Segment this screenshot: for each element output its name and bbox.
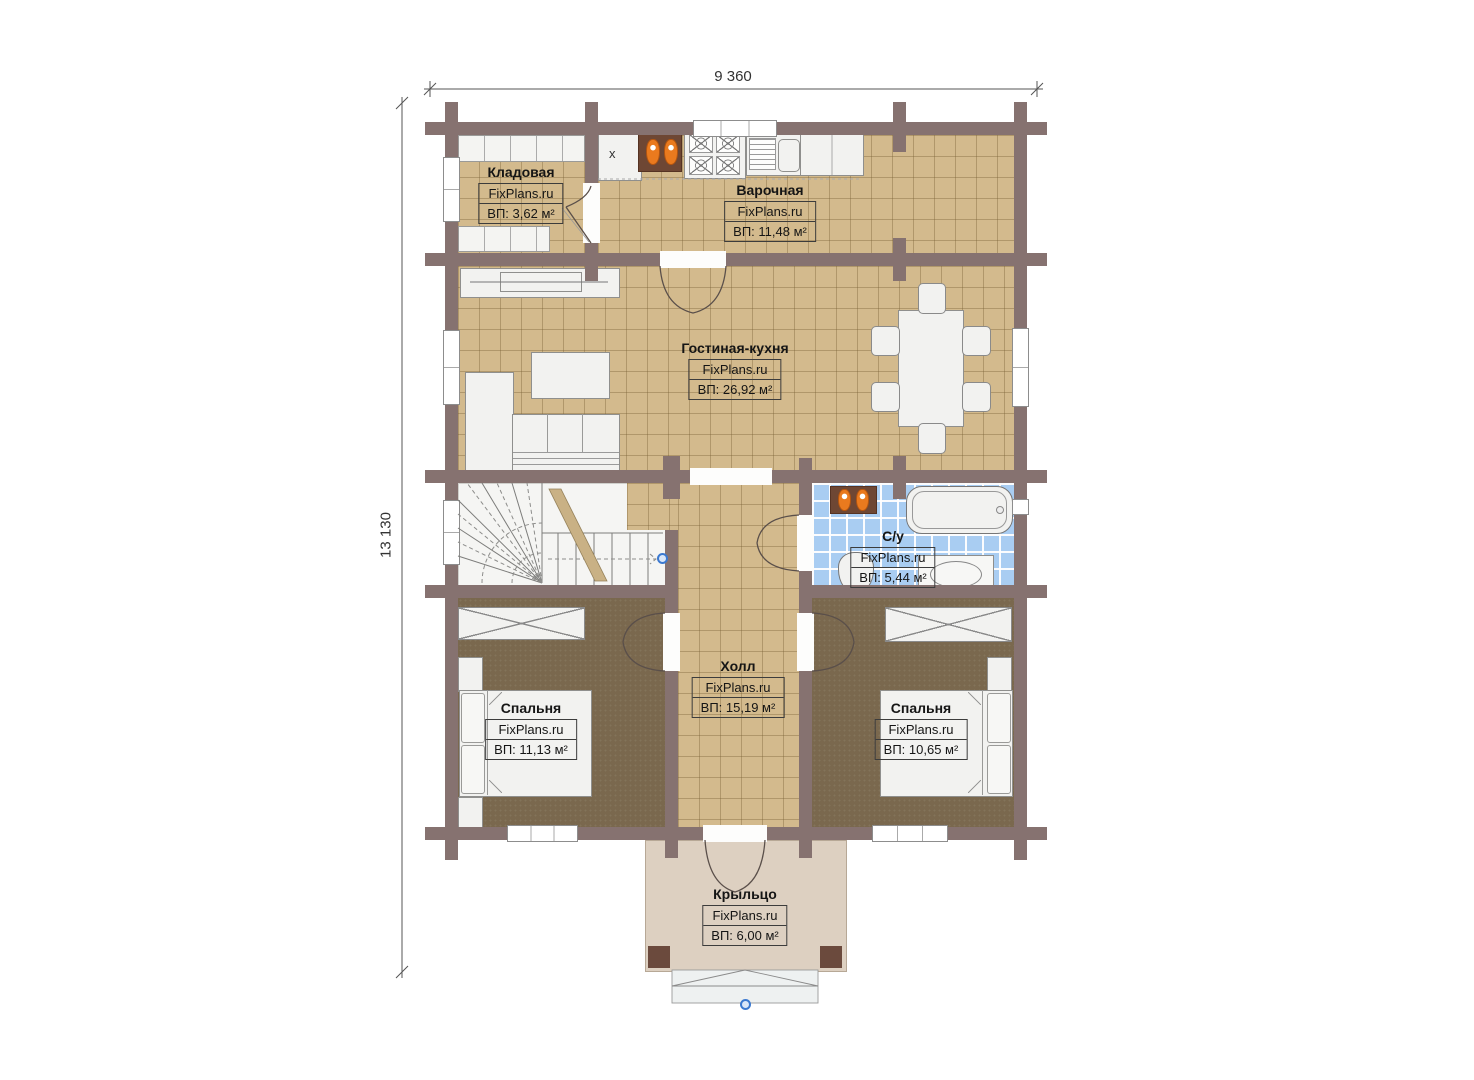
floor-hall <box>678 483 799 827</box>
gas-burner-icon <box>689 156 713 175</box>
log-end <box>585 266 598 281</box>
room-info-box: FixPlans.ru ВП: 5,44 м² <box>850 547 935 588</box>
room-label-porch: Крыльцо FixPlans.ru ВП: 6,00 м² <box>702 886 787 946</box>
room-name: Кладовая <box>478 164 563 180</box>
blanket-edge <box>982 690 983 795</box>
log-end <box>425 470 445 483</box>
burner-icon <box>646 139 660 165</box>
coffee-table <box>531 352 610 399</box>
window-bathroom <box>1012 499 1029 515</box>
burner-icon <box>664 139 678 165</box>
wardrobe-left <box>458 607 585 640</box>
basin-icon <box>930 561 982 588</box>
bathtub-inner <box>912 491 1007 529</box>
plan-node-handle[interactable] <box>740 999 751 1010</box>
door-opening-bathroom <box>797 515 814 571</box>
bathtub-drain-icon <box>996 506 1004 514</box>
nightstand <box>458 797 483 831</box>
floor-plan-canvas: x <box>0 0 1474 1080</box>
blanket-fold-icon <box>968 692 981 705</box>
room-label-living-kitchen: Гостиная-кухня FixPlans.ru ВП: 26,92 м² <box>681 340 788 400</box>
log-end <box>1014 840 1027 860</box>
sofa <box>512 414 620 472</box>
dish-drainer <box>749 138 776 170</box>
room-name: Спальня <box>485 700 577 716</box>
wall-v2 <box>665 530 678 827</box>
sink-bowl <box>778 139 800 172</box>
kitchen-counter-left <box>598 133 642 181</box>
door-opening-bedroom-right <box>797 613 814 671</box>
door-opening-entrance <box>703 825 767 842</box>
area-text: ВП: 3,62 м² <box>479 204 562 223</box>
room-label-bedroom-left: Спальня FixPlans.ru ВП: 11,13 м² <box>485 700 577 760</box>
window-stairs <box>443 500 460 565</box>
porch-post <box>820 946 842 968</box>
area-text: ВП: 10,65 м² <box>876 740 967 759</box>
dimension-height: 13 130 <box>378 512 395 558</box>
area-text: ВП: 11,48 м² <box>725 222 815 241</box>
brand-text: FixPlans.ru <box>851 548 934 568</box>
burner-icon <box>856 489 869 511</box>
log-end <box>799 840 812 858</box>
room-info-box: FixPlans.ru ВП: 6,00 м² <box>702 905 787 946</box>
sofa-seat-divider <box>582 414 583 452</box>
room-info-box: FixPlans.ru ВП: 11,13 м² <box>485 719 577 760</box>
pillow <box>461 745 485 794</box>
window-kitchen <box>693 120 777 137</box>
pillow <box>987 745 1011 794</box>
window-bedroom-left <box>507 825 578 842</box>
room-info-box: FixPlans.ru ВП: 15,19 м² <box>692 677 785 718</box>
log-end <box>665 840 678 858</box>
log-end <box>1027 585 1047 598</box>
dining-table <box>898 310 964 427</box>
room-name: С/у <box>850 528 935 544</box>
pillow <box>461 693 485 743</box>
blanket-fold-icon <box>489 780 502 793</box>
log-end <box>893 456 906 499</box>
nightstand <box>458 657 483 692</box>
wall-exterior-right <box>1014 122 1027 840</box>
area-text: ВП: 6,00 м² <box>703 926 786 945</box>
log-end <box>799 458 812 470</box>
log-end <box>445 840 458 860</box>
gas-burner-icon <box>716 156 740 175</box>
door-opening-storage <box>583 183 600 243</box>
window-storage <box>443 157 460 222</box>
room-label-storage: Кладовая FixPlans.ru ВП: 3,62 м² <box>478 164 563 224</box>
room-label-hall: Холл FixPlans.ru ВП: 15,19 м² <box>692 658 785 718</box>
nightstand <box>987 657 1012 692</box>
area-text: ВП: 15,19 м² <box>693 698 784 717</box>
wall-h3-left <box>458 585 665 598</box>
sofa-seat-divider <box>547 414 548 452</box>
log-end <box>1027 122 1047 135</box>
window-dining <box>1012 328 1029 407</box>
log-end <box>1027 253 1047 266</box>
counter-x-mark: x <box>609 146 616 161</box>
area-text: ВП: 5,44 м² <box>851 568 934 587</box>
brand-text: FixPlans.ru <box>703 906 786 926</box>
log-end <box>893 238 906 281</box>
chaise-seat <box>465 372 514 472</box>
room-info-box: FixPlans.ru ВП: 3,62 м² <box>478 183 563 224</box>
brand-text: FixPlans.ru <box>690 360 781 380</box>
room-info-box: FixPlans.ru ВП: 10,65 м² <box>875 719 968 760</box>
brand-text: FixPlans.ru <box>486 720 576 740</box>
room-name: Холл <box>692 658 785 674</box>
log-end <box>425 253 445 266</box>
door-opening-living <box>660 251 726 268</box>
room-label-bedroom-right: Спальня FixPlans.ru ВП: 10,65 м² <box>875 700 968 760</box>
room-name: Крыльцо <box>702 886 787 902</box>
room-label-cooking: Варочная FixPlans.ru ВП: 11,48 м² <box>724 182 816 242</box>
dining-chair <box>962 326 991 356</box>
wardrobe-right <box>885 607 1012 642</box>
tv <box>500 272 582 292</box>
wall-stub-kitchen <box>893 135 906 152</box>
dining-chair <box>918 423 946 454</box>
room-info-box: FixPlans.ru ВП: 11,48 м² <box>724 201 816 242</box>
room-name: Гостиная-кухня <box>681 340 788 356</box>
brand-text: FixPlans.ru <box>693 678 784 698</box>
room-name: Спальня <box>875 700 968 716</box>
log-end <box>1014 102 1027 122</box>
window-bedroom-right <box>872 825 948 842</box>
wall-h1 <box>458 253 1014 266</box>
dining-chair <box>871 382 900 412</box>
storage-shelf-top <box>458 135 585 162</box>
log-end <box>893 102 906 122</box>
burner-icon <box>838 489 851 511</box>
brand-text: FixPlans.ru <box>876 720 967 740</box>
area-text: ВП: 11,13 м² <box>486 740 576 759</box>
pillow <box>987 693 1011 743</box>
log-end <box>425 122 445 135</box>
log-end <box>445 102 458 122</box>
dining-chair <box>871 326 900 356</box>
window-living-left <box>443 330 460 405</box>
log-end <box>1027 470 1047 483</box>
room-name: Варочная <box>724 182 816 198</box>
porch-post <box>648 946 670 968</box>
plan-node-handle[interactable] <box>657 553 668 564</box>
passage-living-hall <box>690 468 772 485</box>
wall-exterior-left <box>445 122 458 840</box>
door-opening-bedroom-left <box>663 613 680 671</box>
storage-shelf-bottom <box>458 226 550 252</box>
brand-text: FixPlans.ru <box>725 202 815 222</box>
log-end <box>425 827 445 840</box>
log-end <box>425 585 445 598</box>
brand-text: FixPlans.ru <box>479 184 562 204</box>
room-info-box: FixPlans.ru ВП: 26,92 м² <box>689 359 782 400</box>
dining-chair <box>962 382 991 412</box>
room-label-bathroom: С/у FixPlans.ru ВП: 5,44 м² <box>850 528 935 588</box>
log-end <box>663 456 680 499</box>
blanket-fold-icon <box>968 780 981 793</box>
log-end <box>585 102 598 122</box>
dimension-width: 9 360 <box>714 68 752 85</box>
dining-chair <box>918 283 946 314</box>
area-text: ВП: 26,92 м² <box>690 380 781 399</box>
kitchen-counter-right <box>800 133 864 176</box>
log-end <box>1027 827 1047 840</box>
